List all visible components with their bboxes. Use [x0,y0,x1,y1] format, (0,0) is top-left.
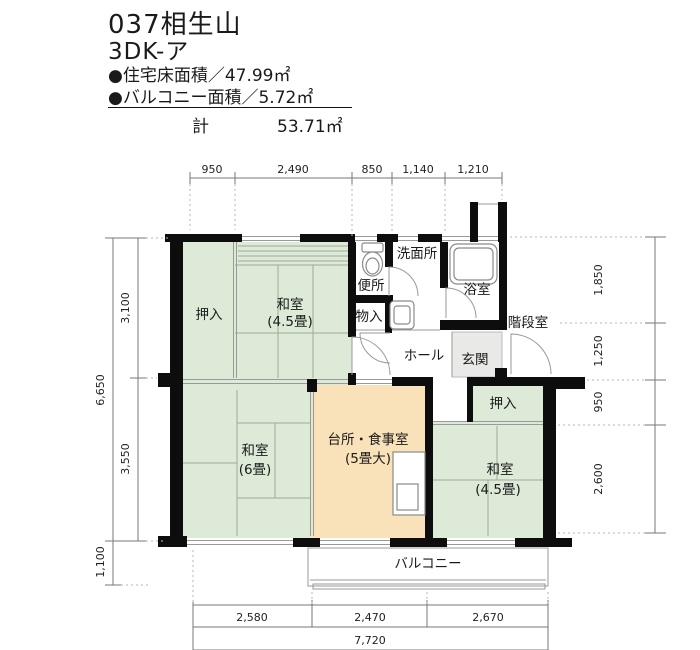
storage-door-swing [360,333,390,363]
dim-left-total: 6,650 [94,374,107,406]
label-washitsu-br-size: (4.5畳) [475,482,521,498]
label-washitsu-tl-size: (4.5畳) [267,314,313,330]
washbasin-icon [390,301,414,329]
dim-top-2: 2,490 [277,163,309,176]
kitchen-counter-icon [393,452,425,515]
dim-top-5: 1,210 [457,163,489,176]
toilet-icon [362,243,383,276]
label-washitsu-br: 和室 [487,461,514,478]
dimension-left: 6,650 1,100 3,100 3,550 [94,238,168,585]
entrance-door-swing [511,334,551,374]
label-washitsu-tl: 和室 [277,296,304,313]
label-kaidanshitsu: 階段室 [508,314,549,331]
floor-plan-page: 037相生山 3DK-ア ●住宅床面積／47.99㎡ ●バルコニー面積／5.72… [0,0,700,650]
dim-left-2: 3,550 [119,443,132,475]
label-daidokoro-size: (5畳大) [345,451,391,467]
dim-top-1: 950 [202,163,223,176]
toilet-door-swing [389,267,418,296]
dim-bottom-2: 2,470 [354,611,386,624]
label-oshiire-br: 押入 [490,396,518,412]
label-oshiire-tl: 押入 [196,307,223,323]
label-yokushitsu: 浴室 [464,281,491,298]
label-washitsu-bl: 和室 [242,442,269,459]
dimension-top: 950 2,490 850 1,140 1,210 [190,163,502,236]
floor-plan-drawing: 950 2,490 850 1,140 1,210 6,650 1,100 3,… [0,0,700,650]
label-washitsu-bl-size: (6畳) [239,462,272,478]
label-mononoiri: 物入 [356,309,383,325]
dim-bottom-1: 2,580 [236,611,268,624]
label-balcony: バルコニー [394,556,461,572]
bathtub-icon [450,244,497,284]
label-hall: ホール [404,348,445,364]
dim-bottom-total: 7,720 [354,634,386,647]
dim-left-balcony: 1,100 [94,546,107,578]
dim-top-3: 850 [362,163,383,176]
dim-right-3: 950 [592,392,605,413]
dim-bottom-3: 2,670 [472,611,504,624]
dim-top-4: 1,140 [402,163,434,176]
label-benjo: 便所 [358,278,385,294]
dim-right-2: 1,250 [592,335,605,367]
dim-right-4: 2,600 [592,463,605,495]
dim-left-1: 3,100 [119,292,132,324]
label-genkan: 玄関 [462,351,489,368]
label-daidokoro: 台所・食事室 [328,431,409,448]
label-senmenjo: 洗面所 [397,246,438,262]
dim-right-1: 1,850 [592,264,605,296]
